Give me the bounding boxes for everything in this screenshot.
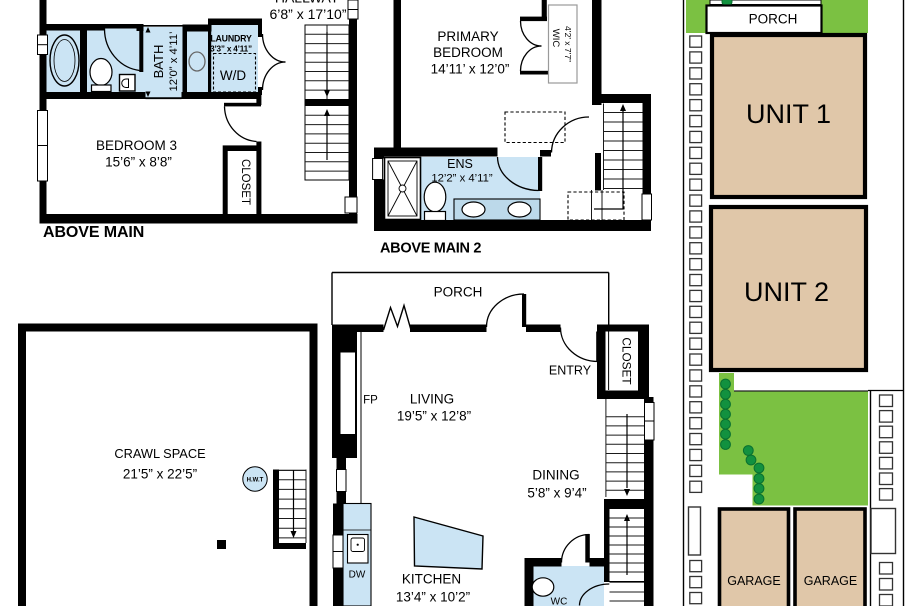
svg-text:21’5” x 22’5”: 21’5” x 22’5” bbox=[123, 467, 197, 482]
svg-text:H.W.T: H.W.T bbox=[247, 478, 264, 484]
svg-text:UNIT 1: UNIT 1 bbox=[746, 99, 831, 129]
svg-text:14’11’ x 12’0”: 14’11’ x 12’0” bbox=[431, 62, 510, 77]
svg-text:LIVING: LIVING bbox=[410, 392, 454, 407]
svg-text:BEDROOM: BEDROOM bbox=[433, 45, 503, 60]
svg-text:BATH: BATH bbox=[151, 45, 166, 79]
svg-text:13’4” x 10’2”: 13’4” x 10’2” bbox=[396, 590, 470, 605]
svg-text:12’0” x 4’11’: 12’0” x 4’11’ bbox=[168, 31, 180, 91]
svg-text:CLOSET: CLOSET bbox=[620, 337, 634, 384]
svg-text:WIC: WIC bbox=[550, 29, 561, 48]
svg-text:CRAWL SPACE: CRAWL SPACE bbox=[114, 446, 205, 461]
svg-text:LAUNDRY: LAUNDRY bbox=[210, 34, 252, 44]
svg-text:FP: FP bbox=[363, 395, 378, 407]
svg-text:DW: DW bbox=[349, 570, 366, 581]
svg-text:PRIMARY: PRIMARY bbox=[437, 29, 498, 44]
svg-text:6’8” x 17’10”: 6’8” x 17’10” bbox=[269, 6, 346, 22]
svg-text:PORCH: PORCH bbox=[749, 12, 798, 27]
svg-text:BEDROOM 3: BEDROOM 3 bbox=[96, 138, 177, 153]
svg-text:DINING: DINING bbox=[532, 468, 579, 483]
svg-text:WC: WC bbox=[551, 597, 568, 606]
svg-text:12’2” x 4’11”: 12’2” x 4’11” bbox=[431, 173, 493, 185]
svg-text:HALLWAY: HALLWAY bbox=[275, 0, 340, 6]
svg-text:ABOVE MAIN: ABOVE MAIN bbox=[43, 224, 144, 241]
svg-text:5’8” x 9’4”: 5’8” x 9’4” bbox=[527, 486, 586, 501]
svg-text:GARAGE: GARAGE bbox=[727, 574, 781, 588]
svg-text:CLOSET: CLOSET bbox=[239, 159, 251, 205]
svg-text:15’6” x 8’8”: 15’6” x 8’8” bbox=[105, 155, 172, 170]
svg-text:ENS: ENS bbox=[447, 157, 473, 171]
svg-text:GARAGE: GARAGE bbox=[804, 574, 858, 588]
svg-text:19’5” x 12’8”: 19’5” x 12’8” bbox=[397, 409, 471, 424]
svg-text:PORCH: PORCH bbox=[434, 285, 483, 300]
svg-text:KITCHEN: KITCHEN bbox=[402, 572, 461, 587]
svg-text:3’3” x 4’11”: 3’3” x 4’11” bbox=[210, 45, 252, 54]
svg-text:ABOVE MAIN 2: ABOVE MAIN 2 bbox=[380, 241, 481, 257]
svg-text:ENTRY: ENTRY bbox=[549, 364, 592, 378]
svg-text:4’2’ x 7’7”: 4’2’ x 7’7” bbox=[563, 26, 573, 62]
svg-text:UNIT 2: UNIT 2 bbox=[744, 277, 829, 307]
svg-text:W/D: W/D bbox=[220, 68, 246, 83]
